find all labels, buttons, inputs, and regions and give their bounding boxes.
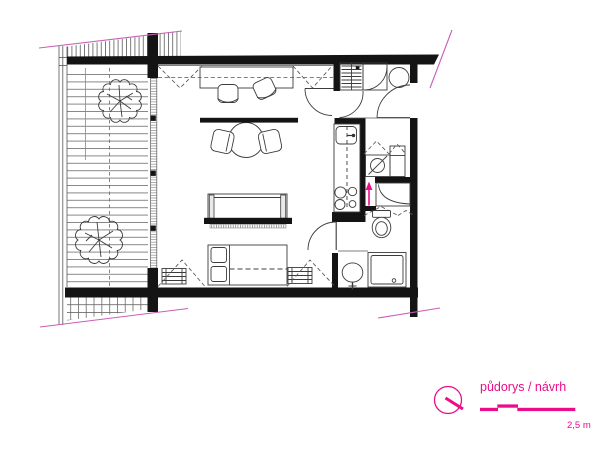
toilet-icon (372, 211, 391, 238)
terrace-bottom-grid-hatch (67, 298, 148, 321)
kitchen-counter (334, 124, 360, 212)
boiler-icon (389, 68, 409, 88)
corner-shelf-icon (363, 63, 387, 90)
stove-icon (335, 187, 357, 210)
dining-chair-icon (257, 129, 282, 155)
desk-chair-icon (218, 85, 239, 103)
scale-label: 2,5 m (567, 420, 591, 431)
east-wall (410, 118, 418, 317)
entry-arrow-icon (366, 182, 373, 206)
wc-room (376, 183, 410, 206)
wardrobe-icon (340, 63, 363, 90)
headboard-band (210, 225, 286, 229)
wc-door-swing-icon (379, 185, 410, 205)
dining-chair-icon (210, 129, 235, 155)
terrace-top-hatch (67, 31, 181, 57)
glazing-wall (150, 78, 156, 268)
legend-title: půdorys / návrh (480, 380, 566, 394)
site-boundary (59, 46, 67, 325)
laundry-wall-bar (375, 177, 414, 183)
shelf-bar (200, 118, 298, 123)
terrace (67, 31, 181, 321)
legend: půdorys / návrh 2,5 m (435, 380, 591, 431)
mullion-post (150, 171, 155, 176)
mullion-post (150, 116, 155, 121)
shower-icon (368, 253, 406, 288)
floor-plan-svg: půdorys / návrh 2,5 m (0, 0, 610, 450)
terrace-decking (67, 68, 148, 288)
sofa-icon (208, 194, 287, 219)
northwest-wall-fin (148, 33, 159, 78)
compass-icon (435, 387, 464, 414)
interior-door-swing-icon (305, 89, 363, 118)
mullion-post (150, 226, 155, 231)
radiator-icon (162, 269, 186, 285)
bed-icon (208, 245, 287, 285)
bathroom-door-swing-icon (308, 222, 336, 250)
floor-plan-page: půdorys / návrh 2,5 m (0, 0, 610, 450)
entry-wall-stub (334, 62, 341, 91)
southwest-wall-fin (148, 268, 159, 312)
scale-bar (480, 404, 575, 411)
bathroom-wall-stub (332, 253, 338, 288)
washbasin-icon (342, 263, 363, 290)
kitchen-wall-cap-bottom (332, 212, 366, 222)
washing-machine-icon (366, 155, 391, 177)
south-wall (65, 288, 418, 298)
sofa-back-bar (204, 218, 292, 224)
boundary-line-bottom-right (378, 308, 440, 318)
east-wall-upper (410, 57, 418, 84)
